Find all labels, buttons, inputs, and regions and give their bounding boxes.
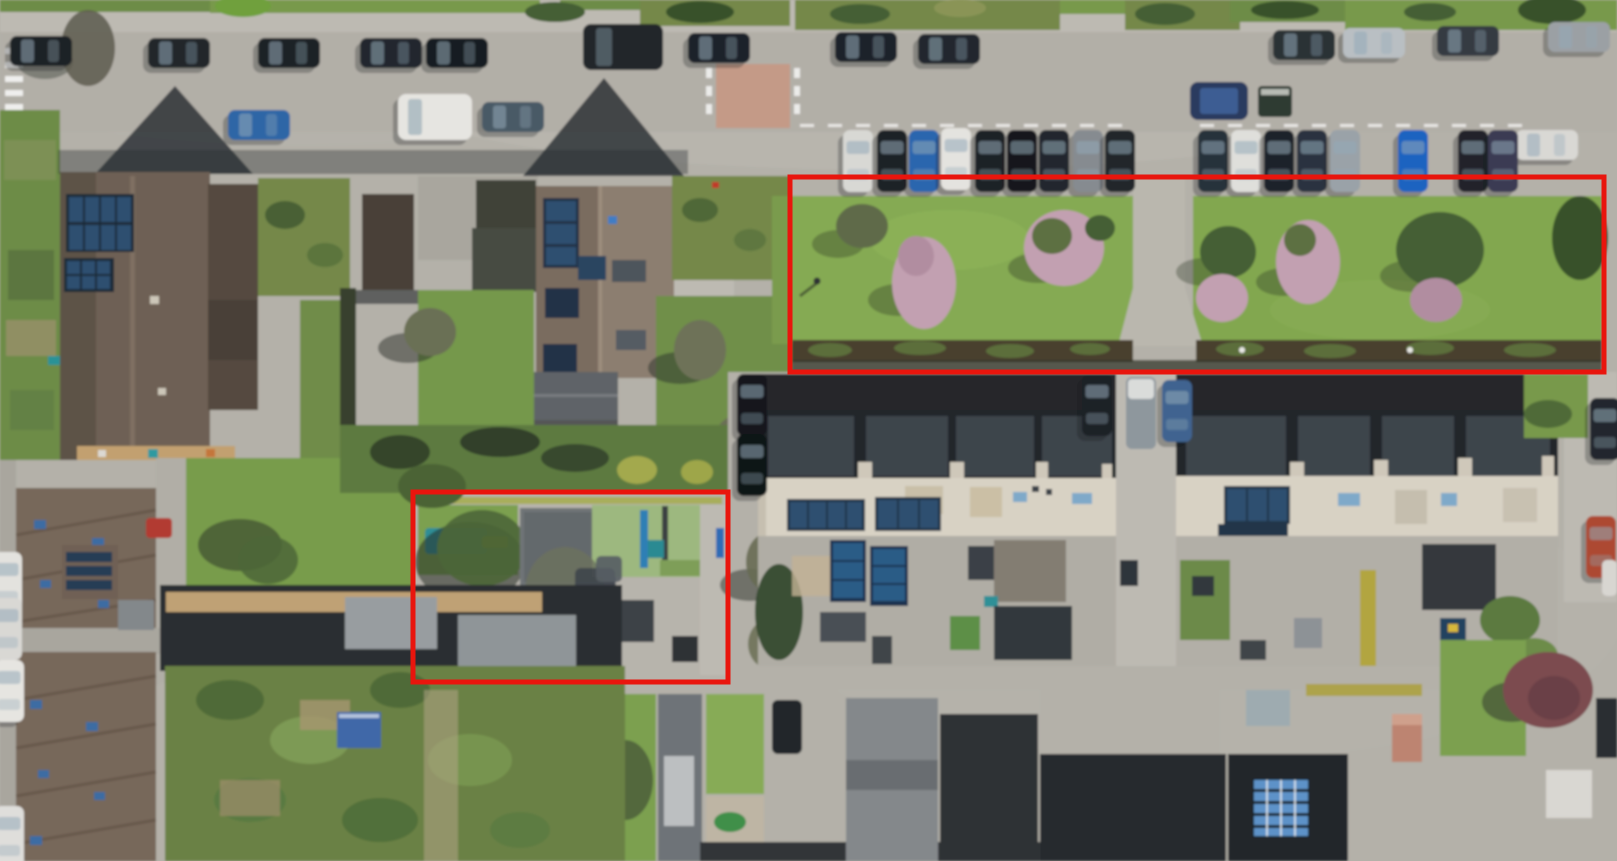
dark-van — [583, 24, 663, 70]
garage-roof — [1422, 544, 1496, 610]
blue-bench — [716, 528, 724, 558]
greenhouse — [1246, 690, 1290, 726]
garden-far-left — [0, 110, 61, 460]
allotments — [165, 666, 625, 861]
shed-roof — [994, 540, 1066, 602]
solar-array — [64, 258, 114, 292]
solar-grid — [1252, 778, 1310, 838]
grey-shed — [118, 600, 154, 630]
outbuilding-roof — [362, 194, 414, 290]
solar-array — [543, 198, 579, 268]
red-car — [146, 518, 172, 538]
light-van — [1126, 377, 1156, 449]
solar-array — [1218, 486, 1290, 536]
yellow-path-edge — [1306, 684, 1422, 696]
brown-tiled-roof — [16, 652, 156, 861]
paved-crossing — [706, 64, 800, 128]
left-edge-cars — [0, 552, 24, 861]
grey-shed — [345, 597, 437, 649]
solar-array — [830, 540, 866, 602]
white-van — [393, 94, 472, 145]
overhanging-tree — [398, 464, 466, 508]
pink-shed — [1392, 714, 1422, 762]
solar-array — [875, 497, 941, 531]
small-roof-with-solar — [62, 545, 118, 599]
solar-array — [66, 194, 134, 252]
aerial-photo: Aerial photograph of a residential neigh… — [0, 0, 1617, 861]
yellow-hedge — [1360, 570, 1376, 670]
back-gardens-1 — [755, 536, 1164, 668]
top-garden-strip — [0, 0, 1617, 32]
car-with-trailer — [1190, 82, 1292, 120]
lamp-post — [1239, 347, 1245, 353]
white-shed — [1546, 770, 1592, 818]
bottom-left-roofs — [0, 460, 172, 861]
back-lane — [744, 666, 1560, 690]
solar-array — [787, 499, 865, 531]
photo-layer — [0, 0, 1617, 861]
lamp-post — [1407, 347, 1413, 353]
solar-array — [870, 546, 908, 606]
screenshot-root: Aerial photograph of a residential neigh… — [0, 0, 1617, 861]
blue-tarp — [337, 712, 381, 748]
shed-roof — [994, 606, 1072, 660]
